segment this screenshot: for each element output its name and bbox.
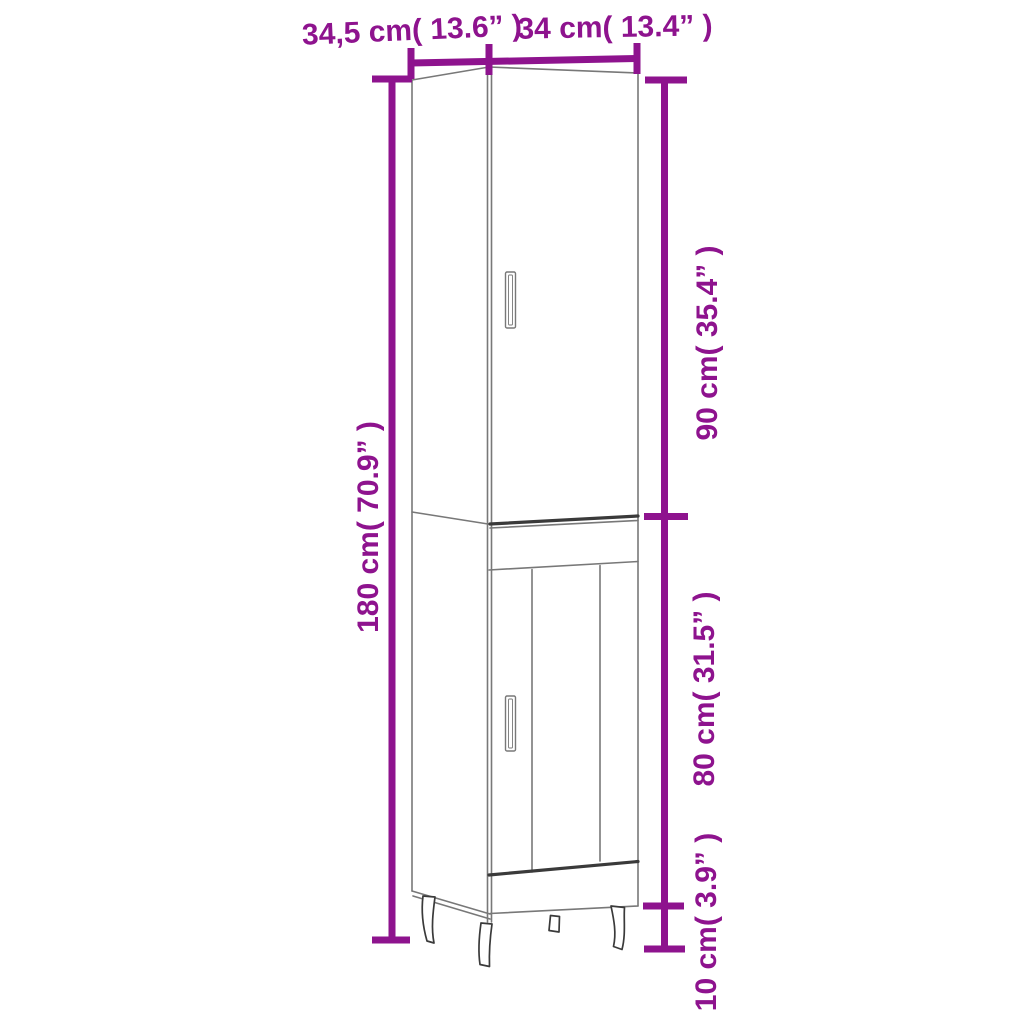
upper-door — [490, 516, 638, 528]
cabinet-leg-back-middle — [549, 916, 560, 933]
lower-door-handle — [506, 696, 516, 751]
dimension-label-leg-height: 10 cm( 3.9” ) — [690, 833, 724, 1011]
dimension-label-total-height: 180 cm( 70.9” ) — [352, 421, 386, 633]
cabinet-line-drawing — [0, 0, 1024, 1024]
dimension-label-upper-section-height: 90 cm( 35.4” ) — [691, 245, 725, 440]
upper-door-handle — [506, 272, 516, 328]
cabinet-leg-left — [422, 896, 435, 943]
dimension-diagram: 34,5 cm( 13.6” ) 34 cm( 13.4” ) 180 cm( … — [0, 0, 1024, 1024]
dimension-label-top-right-width: 34 cm( 13.4” ) — [517, 9, 713, 46]
dimension-label-lower-section-height: 80 cm( 31.5” ) — [688, 591, 722, 786]
right-dimension-line — [643, 80, 688, 949]
cabinet-legs — [422, 896, 624, 967]
cabinet-body — [412, 67, 638, 922]
cabinet-leg-front — [479, 923, 492, 967]
cabinet-leg-right — [611, 906, 625, 950]
top-dimension-line — [411, 43, 637, 79]
